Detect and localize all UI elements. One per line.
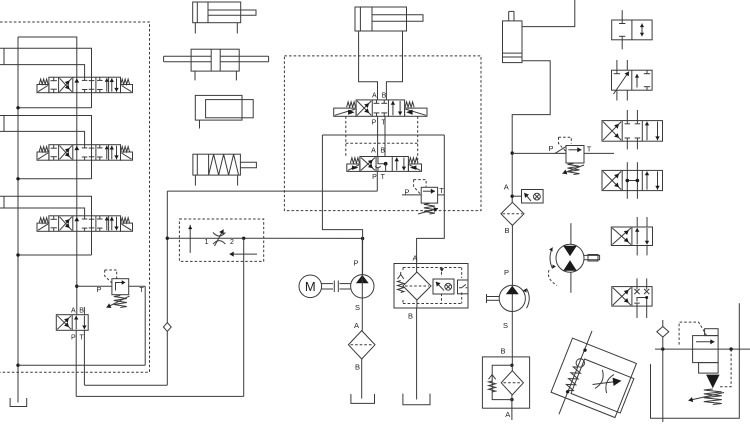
svg-text:A: A — [372, 93, 377, 100]
svg-text:T: T — [381, 120, 386, 127]
svg-text:T: T — [139, 285, 144, 294]
svg-text:2: 2 — [230, 239, 234, 246]
svg-text:B: B — [504, 226, 509, 235]
svg-text:A: A — [505, 410, 510, 419]
svg-text:A: A — [71, 308, 76, 315]
svg-text:P: P — [372, 174, 377, 181]
svg-text:T: T — [439, 186, 444, 195]
svg-text:P: P — [504, 268, 509, 277]
svg-text:M: M — [305, 279, 316, 294]
svg-text:S: S — [503, 321, 508, 330]
svg-text:P: P — [71, 335, 76, 342]
svg-text:P: P — [353, 259, 358, 268]
svg-text:T: T — [587, 145, 592, 154]
svg-text:B: B — [355, 363, 360, 372]
svg-text:T: T — [381, 174, 386, 181]
svg-text:B: B — [408, 312, 413, 321]
svg-text:P: P — [96, 285, 101, 294]
svg-text:B: B — [79, 308, 84, 315]
svg-text:B: B — [500, 347, 505, 356]
svg-text:S: S — [355, 303, 360, 312]
svg-text:P: P — [404, 188, 409, 197]
svg-text:P: P — [548, 144, 553, 153]
svg-text:A: A — [504, 183, 509, 192]
svg-text:P: P — [372, 120, 377, 127]
svg-text:B: B — [382, 93, 387, 100]
svg-text:1: 1 — [205, 239, 209, 246]
svg-text:A: A — [354, 321, 359, 330]
svg-text:A: A — [412, 254, 417, 263]
svg-text:T: T — [79, 335, 84, 342]
svg-text:A: A — [371, 148, 376, 155]
